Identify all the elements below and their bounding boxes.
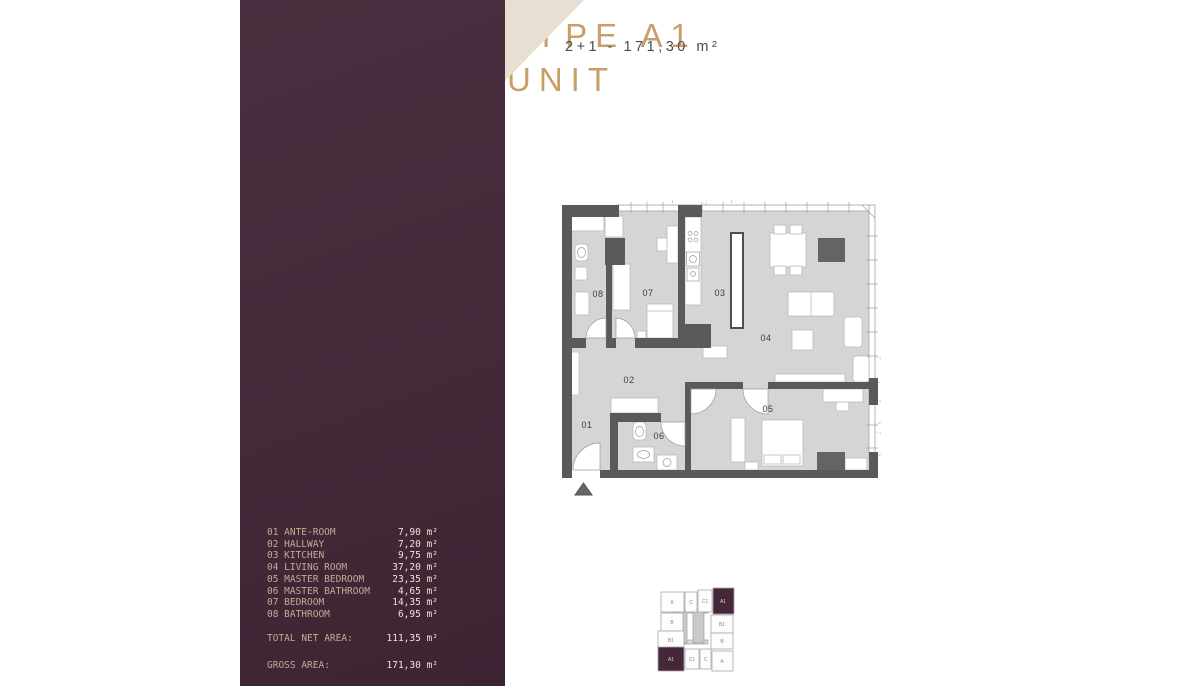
room-name: MASTER BEDROOM (284, 574, 364, 586)
kp-unit-c-top: C (689, 600, 693, 606)
kp-unit-a1-top: A1 (720, 599, 726, 605)
total-net-area-label: TOTAL NET AREA: (267, 633, 353, 645)
plan-label-03: 03 (714, 288, 725, 298)
schedule-row: 07 BEDROOM 14,35 m² (267, 597, 438, 609)
schedule-row: 01 ANTE-ROOM 7,90 m² (267, 527, 438, 539)
room-name: BATHROOM (284, 609, 330, 621)
floor-plan-drawing: 08 07 03 04 02 01 06 05 (559, 200, 881, 502)
gross-area-row: GROSS AREA: 171,30 m² (267, 660, 438, 672)
kp-unit-b1-right: B1 (719, 622, 725, 628)
plan-label-01: 01 (581, 420, 592, 430)
plan-label-02: 02 (623, 375, 634, 385)
gross-area-value: 171,30 m² (387, 660, 438, 672)
schedule-row: 04 LIVING ROOM 37,20 m² (267, 562, 438, 574)
schedule-row: 03 KITCHEN 9,75 m² (267, 550, 438, 562)
schedule-row: 05 MASTER BEDROOM 23,35 m² (267, 574, 438, 586)
total-net-area-value: 111,35 m² (387, 633, 438, 645)
area-totals: TOTAL NET AREA: 111,35 m² GROSS AREA: 17… (267, 633, 438, 672)
room-area: 7,90 m² (398, 527, 438, 539)
room-number: 02 (267, 539, 278, 551)
room-name: BEDROOM (284, 597, 324, 609)
kp-unit-c1-top: C1 (702, 599, 709, 605)
room-number: 01 (267, 527, 278, 539)
room-area: 4,65 m² (398, 586, 438, 598)
plan-label-04: 04 (760, 333, 771, 343)
room-name: LIVING ROOM (284, 562, 347, 574)
plan-label-07: 07 (642, 288, 653, 298)
title-line-2: UNIT (507, 58, 697, 102)
plan-label-08: 08 (592, 289, 603, 299)
schedule-row: 08 BATHROOM 6,95 m² (267, 609, 438, 621)
gross-area-label: GROSS AREA: (267, 660, 330, 672)
total-net-area-row: TOTAL NET AREA: 111,35 m² (267, 633, 438, 645)
kitchen-island (731, 233, 743, 328)
kp-unit-a1-bottom: A1 (668, 657, 674, 663)
room-number: 03 (267, 550, 278, 562)
room-area: 37,20 m² (392, 562, 438, 574)
key-plan: A C C1 A1 B B1 B1 B A1 C1 C A (652, 583, 736, 673)
unit-spec-heading: 2+1 - 171,30 m² (565, 39, 720, 55)
room-number: 05 (267, 574, 278, 586)
room-name: KITCHEN (284, 550, 324, 562)
plan-label-06: 06 (653, 431, 664, 441)
plan-label-05: 05 (762, 404, 773, 414)
north-arrow-icon (575, 483, 592, 495)
kp-unit-c-bottom: C (704, 657, 708, 663)
room-name: HALLWAY (284, 539, 324, 551)
room-area: 9,75 m² (398, 550, 438, 562)
kp-unit-c1-bottom: C1 (689, 657, 696, 663)
schedule-row: 02 HALLWAY 7,20 m² (267, 539, 438, 551)
room-number: 08 (267, 609, 278, 621)
room-area: 6,95 m² (398, 609, 438, 621)
kp-unit-b1-left: B1 (668, 638, 674, 644)
schedule-row: 06 MASTER BATHROOM 4,65 m² (267, 586, 438, 598)
room-area: 14,35 m² (392, 597, 438, 609)
room-area: 23,35 m² (392, 574, 438, 586)
room-schedule: 01 ANTE-ROOM 7,90 m² 02 HALLWAY 7,20 m² … (267, 527, 438, 672)
room-number: 07 (267, 597, 278, 609)
room-number: 06 (267, 586, 278, 598)
room-number: 04 (267, 562, 278, 574)
room-name: ANTE-ROOM (284, 527, 335, 539)
room-area: 7,20 m² (398, 539, 438, 551)
room-name: MASTER BATHROOM (284, 586, 370, 598)
